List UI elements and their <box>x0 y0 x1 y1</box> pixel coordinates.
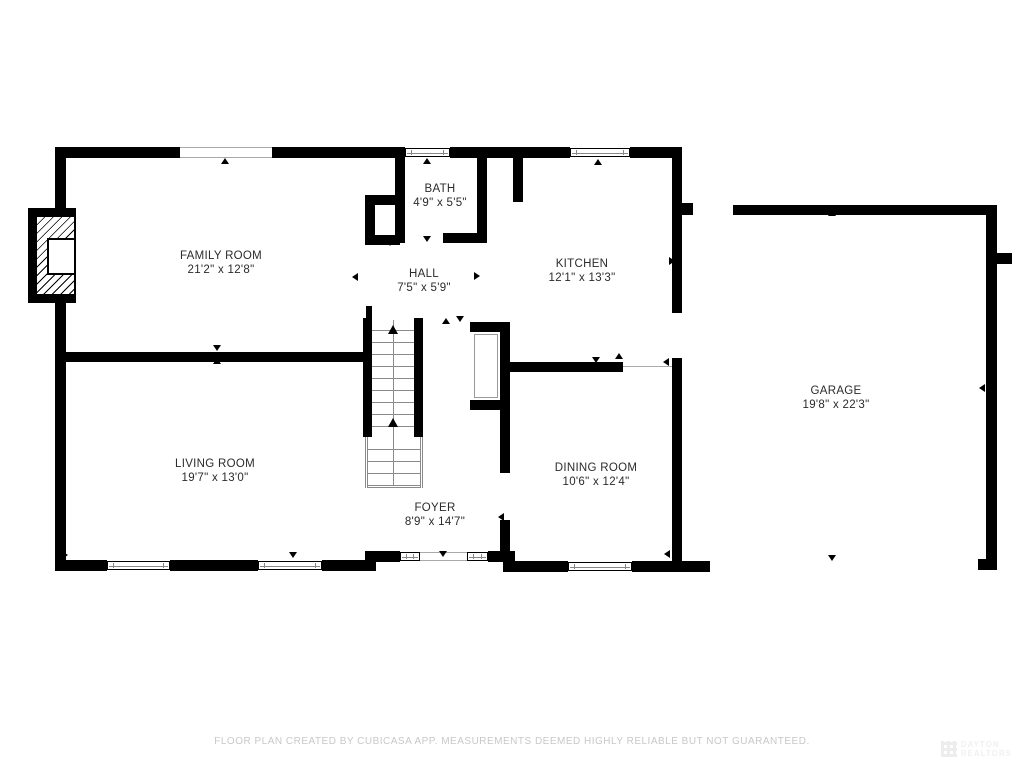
stair-tread <box>368 473 420 474</box>
room-name: KITCHEN <box>549 257 616 271</box>
window-pane-line <box>572 153 628 154</box>
wall-segment <box>272 147 405 158</box>
direction-tick-icon <box>592 357 600 363</box>
wall-segment <box>170 560 258 571</box>
room-dimensions: 19'7" x 13'0" <box>175 471 255 485</box>
stair-up-arrow-icon <box>388 418 398 427</box>
direction-tick-icon <box>289 552 297 558</box>
window-divider <box>113 563 114 568</box>
window-divider <box>574 564 575 569</box>
dining-room-window <box>568 562 632 571</box>
bath-window <box>405 148 450 157</box>
window-divider <box>576 150 577 155</box>
window-divider <box>623 150 624 155</box>
wall-segment <box>978 559 997 570</box>
watermark: DAYTON REALTORS <box>941 740 1012 758</box>
window-divider <box>473 554 474 559</box>
wall-segment <box>55 147 180 158</box>
direction-tick-icon <box>594 159 602 165</box>
direction-tick-icon <box>979 384 985 392</box>
wall-segment <box>366 306 372 318</box>
wall-segment <box>470 400 510 410</box>
window-divider <box>411 150 412 155</box>
living-room-window-1 <box>107 561 170 570</box>
direction-tick-icon <box>423 236 431 242</box>
direction-tick-icon <box>58 177 64 185</box>
window-divider <box>315 563 316 568</box>
foyer-sidelight-right <box>467 552 488 561</box>
window-pane-line <box>469 557 486 558</box>
direction-tick-icon <box>442 318 450 324</box>
room-label-dining-room: DINING ROOM10'6" x 12'4" <box>555 461 638 489</box>
stair-tread <box>368 461 420 462</box>
direction-tick-icon <box>352 273 358 281</box>
wall-segment <box>477 158 487 233</box>
kitchen-window <box>570 148 630 157</box>
room-label-kitchen: KITCHEN12'1" x 13'3" <box>549 257 616 285</box>
stair-tread <box>368 485 420 486</box>
room-name: HALL <box>397 267 451 281</box>
fireplace-firebox <box>47 238 76 275</box>
room-dimensions: 10'6" x 12'4" <box>555 475 638 489</box>
room-label-living-room: LIVING ROOM19'7" x 13'0" <box>175 457 255 485</box>
stair-rail <box>420 437 423 488</box>
family-room-picture-window <box>180 147 272 158</box>
direction-tick-icon <box>439 551 447 557</box>
living-room-window-2 <box>258 561 322 570</box>
wall-segment <box>365 235 400 245</box>
room-dimensions: 7'5" x 5'9" <box>397 281 451 295</box>
direction-tick-icon <box>213 345 221 351</box>
room-label-bath: BATH4'9" x 5'5" <box>413 182 467 210</box>
watermark-line1: DAYTON <box>961 740 1012 749</box>
room-label-foyer: FOYER8'9" x 14'7" <box>405 501 465 529</box>
realtor-logo-icon <box>941 741 957 757</box>
window-divider <box>481 554 482 559</box>
direction-tick-icon <box>386 240 394 246</box>
wall-segment <box>414 318 423 437</box>
direction-tick-icon <box>664 550 670 558</box>
stair-rail <box>365 437 368 488</box>
window-pane-line <box>109 566 168 567</box>
stair-bottom-edge <box>368 487 420 488</box>
direction-tick-icon <box>62 551 68 559</box>
room-name: FOYER <box>405 501 465 515</box>
wall-segment <box>55 560 107 571</box>
closet-interior <box>474 334 498 398</box>
direction-tick-icon <box>456 316 464 322</box>
stair-tread <box>368 449 420 450</box>
wall-segment <box>322 560 365 571</box>
window-divider <box>625 564 626 569</box>
window-pane-line <box>402 557 418 558</box>
wall-segment <box>997 253 1012 264</box>
wall-segment <box>510 362 623 372</box>
direction-tick-icon <box>423 158 431 164</box>
wall-segment <box>55 352 363 362</box>
room-dimensions: 8'9" x 14'7" <box>405 515 465 529</box>
room-name: LIVING ROOM <box>175 457 255 471</box>
room-dimensions: 19'8" x 22'3" <box>803 398 870 412</box>
direction-tick-icon <box>615 353 623 359</box>
direction-tick-icon <box>498 513 504 521</box>
window-divider <box>163 563 164 568</box>
room-label-family-room: FAMILY ROOM21'2" x 12'8" <box>180 249 262 277</box>
room-label-garage: GARAGE19'8" x 22'3" <box>803 384 870 412</box>
footer-disclaimer: FLOOR PLAN CREATED BY CUBICASA APP. MEAS… <box>214 736 809 747</box>
wall-segment <box>500 410 510 473</box>
room-name: DINING ROOM <box>555 461 638 475</box>
room-name: FAMILY ROOM <box>180 249 262 263</box>
room-dimensions: 21'2" x 12'8" <box>180 263 262 277</box>
direction-tick-icon <box>663 358 669 366</box>
wall-segment <box>376 551 400 562</box>
wall-segment <box>682 203 693 215</box>
wall-segment <box>672 147 682 313</box>
direction-tick-icon <box>474 272 480 280</box>
watermark-line2: REALTORS <box>961 749 1012 758</box>
wall-segment <box>55 303 66 571</box>
stair-up-arrow-icon <box>388 325 398 334</box>
direction-tick-icon <box>221 158 229 164</box>
wall-segment <box>986 205 997 560</box>
room-dimensions: 12'1" x 13'3" <box>549 271 616 285</box>
direction-tick-icon <box>669 257 675 265</box>
wall-segment <box>395 158 405 243</box>
direction-tick-icon <box>449 233 457 239</box>
window-pane-line <box>570 567 630 568</box>
floor-plan-canvas: FAMILY ROOM21'2" x 12'8"BATH4'9" x 5'5"H… <box>0 0 1024 768</box>
wall-segment <box>672 358 682 571</box>
wall-segment <box>515 561 568 572</box>
window-divider <box>406 554 407 559</box>
wall-segment <box>500 322 510 410</box>
window-pane-line <box>260 566 320 567</box>
room-name: GARAGE <box>803 384 870 398</box>
foyer-sidelight-left <box>400 552 420 561</box>
direction-tick-icon <box>213 358 221 364</box>
wall-segment <box>365 551 376 571</box>
window-divider <box>413 554 414 559</box>
direction-tick-icon <box>828 210 836 216</box>
direction-tick-icon <box>828 555 836 561</box>
wall-segment <box>513 158 523 202</box>
wall-segment <box>632 561 710 572</box>
wall-segment <box>500 520 510 561</box>
stair-center-line <box>393 320 394 486</box>
wall-segment <box>733 205 997 215</box>
window-pane-line <box>407 153 448 154</box>
wall-segment <box>363 318 372 437</box>
room-name: BATH <box>413 182 467 196</box>
room-label-hall: HALL7'5" x 5'9" <box>397 267 451 295</box>
window-divider <box>443 150 444 155</box>
window-divider <box>264 563 265 568</box>
room-opening-line <box>623 366 672 367</box>
wall-segment <box>450 147 570 158</box>
room-dimensions: 4'9" x 5'5" <box>413 196 467 210</box>
